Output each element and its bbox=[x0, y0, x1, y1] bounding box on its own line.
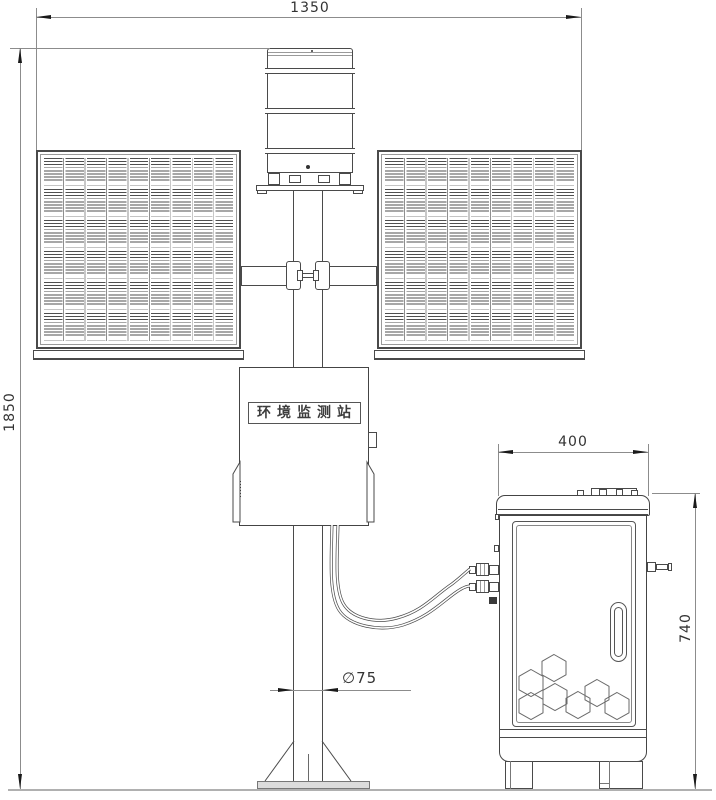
cable-upper-core bbox=[337, 525, 470, 620]
hexagon bbox=[566, 692, 590, 719]
dim-1350-line bbox=[36, 17, 581, 18]
arrowhead-right-icon bbox=[566, 15, 581, 19]
arrowhead-down-icon bbox=[693, 774, 697, 789]
arrowhead-up-icon bbox=[693, 493, 697, 508]
box-ear-right bbox=[367, 462, 374, 522]
base-gusset-line bbox=[322, 741, 351, 781]
arrowhead-left-icon bbox=[36, 15, 51, 19]
hexagon-decoration bbox=[519, 655, 629, 720]
arrowhead-right-icon bbox=[278, 688, 293, 692]
hexagon bbox=[543, 684, 567, 711]
dim-1850-label: 1850 bbox=[2, 390, 18, 434]
arrowhead-up-icon bbox=[18, 48, 22, 63]
technical-drawing-canvas: 环境监测站 bbox=[0, 0, 716, 800]
dim-400-line bbox=[498, 452, 648, 453]
dim-740-label: 740 bbox=[678, 606, 694, 650]
dim-75-label: ∅75 bbox=[342, 670, 398, 686]
dim-1850-ext-top bbox=[10, 48, 270, 49]
cable-upper bbox=[337, 525, 470, 620]
dim-1850-line bbox=[20, 48, 21, 789]
arrowhead-left-icon bbox=[498, 450, 513, 454]
dim-1350-ext-left bbox=[36, 8, 37, 150]
ground-line bbox=[8, 789, 712, 791]
dim-740-line bbox=[695, 493, 696, 789]
box-ear-left bbox=[233, 462, 240, 522]
hexagon bbox=[542, 655, 566, 682]
dim-1350-ext-right bbox=[581, 8, 582, 150]
dim-1350-label: 1350 bbox=[278, 0, 342, 16]
dim-400-ext-right bbox=[648, 444, 649, 496]
arrowhead-down-icon bbox=[18, 774, 22, 789]
signal-cables bbox=[331, 525, 470, 628]
base-gusset-line bbox=[265, 741, 294, 781]
arrowhead-right-icon bbox=[633, 450, 648, 454]
dim-400-label: 400 bbox=[541, 434, 605, 450]
arrowhead-left-icon bbox=[323, 688, 338, 692]
